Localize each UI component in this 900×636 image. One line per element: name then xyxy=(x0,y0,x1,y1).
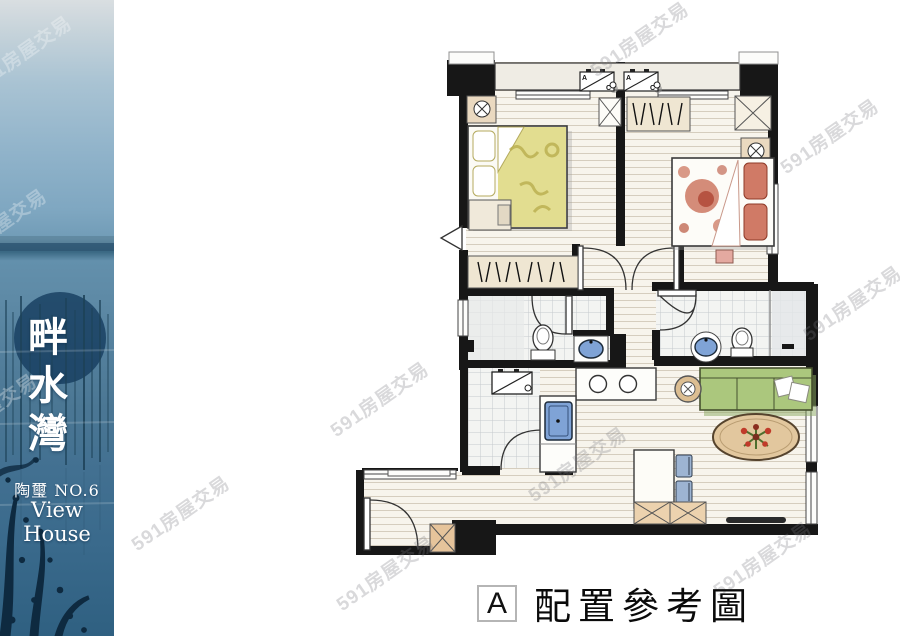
dining-chair-icon xyxy=(676,455,692,477)
pillow-icon xyxy=(473,166,495,196)
shoe-cabinet-x xyxy=(430,524,455,552)
washer-unit-icon xyxy=(492,369,532,394)
burner-icon xyxy=(590,376,607,393)
pillow-icon xyxy=(744,204,767,240)
rug xyxy=(713,414,799,460)
toilet-1-icon xyxy=(531,325,555,360)
window-bathroom1-left xyxy=(458,300,468,336)
window-living-right-2 xyxy=(806,472,817,524)
caption-label: 配置參考圖 xyxy=(534,576,754,630)
floor-plan: A C A C xyxy=(0,0,900,636)
window-top-left xyxy=(516,91,590,99)
ac-unit-icon: A C xyxy=(580,69,618,93)
caption: A 配置參考圖 xyxy=(477,576,754,630)
caption-badge: A xyxy=(477,585,517,622)
page: 畔 水 灣 陶璽 NO.6 View House xyxy=(0,0,900,636)
stove-counter xyxy=(576,368,656,400)
closet-x-2 xyxy=(735,96,771,130)
sink-2-icon xyxy=(691,332,721,362)
wardrobe-1 xyxy=(468,256,578,288)
pillow-icon xyxy=(744,163,767,199)
shower-valve-2-icon xyxy=(782,344,794,349)
bed-2 xyxy=(672,158,774,250)
cabinet-x-dining xyxy=(634,502,706,524)
closet-x-1 xyxy=(599,98,621,126)
pillow-icon xyxy=(473,131,495,161)
burner-icon xyxy=(620,376,637,393)
sofa xyxy=(700,368,816,416)
svg-text:C: C xyxy=(606,85,611,92)
door-balcony-left xyxy=(441,226,462,250)
wardrobe-2 xyxy=(627,97,690,131)
toilet-2-icon xyxy=(731,328,753,357)
shower-valve-1-icon xyxy=(468,340,474,352)
desk-chair-1 xyxy=(498,205,510,225)
ac-unit-icon: A C xyxy=(624,69,662,93)
sofa-pillow-icon xyxy=(788,382,809,402)
stool-2 xyxy=(716,250,733,263)
sink-counter xyxy=(540,396,576,472)
tv-console xyxy=(726,517,786,523)
svg-text:C: C xyxy=(650,85,655,92)
svg-text:A: A xyxy=(626,75,631,82)
basin-1 xyxy=(574,336,608,362)
svg-text:A: A xyxy=(582,75,587,82)
entry-window-sill xyxy=(388,470,450,476)
dining-chair-icon xyxy=(676,481,692,503)
side-table xyxy=(675,376,701,402)
